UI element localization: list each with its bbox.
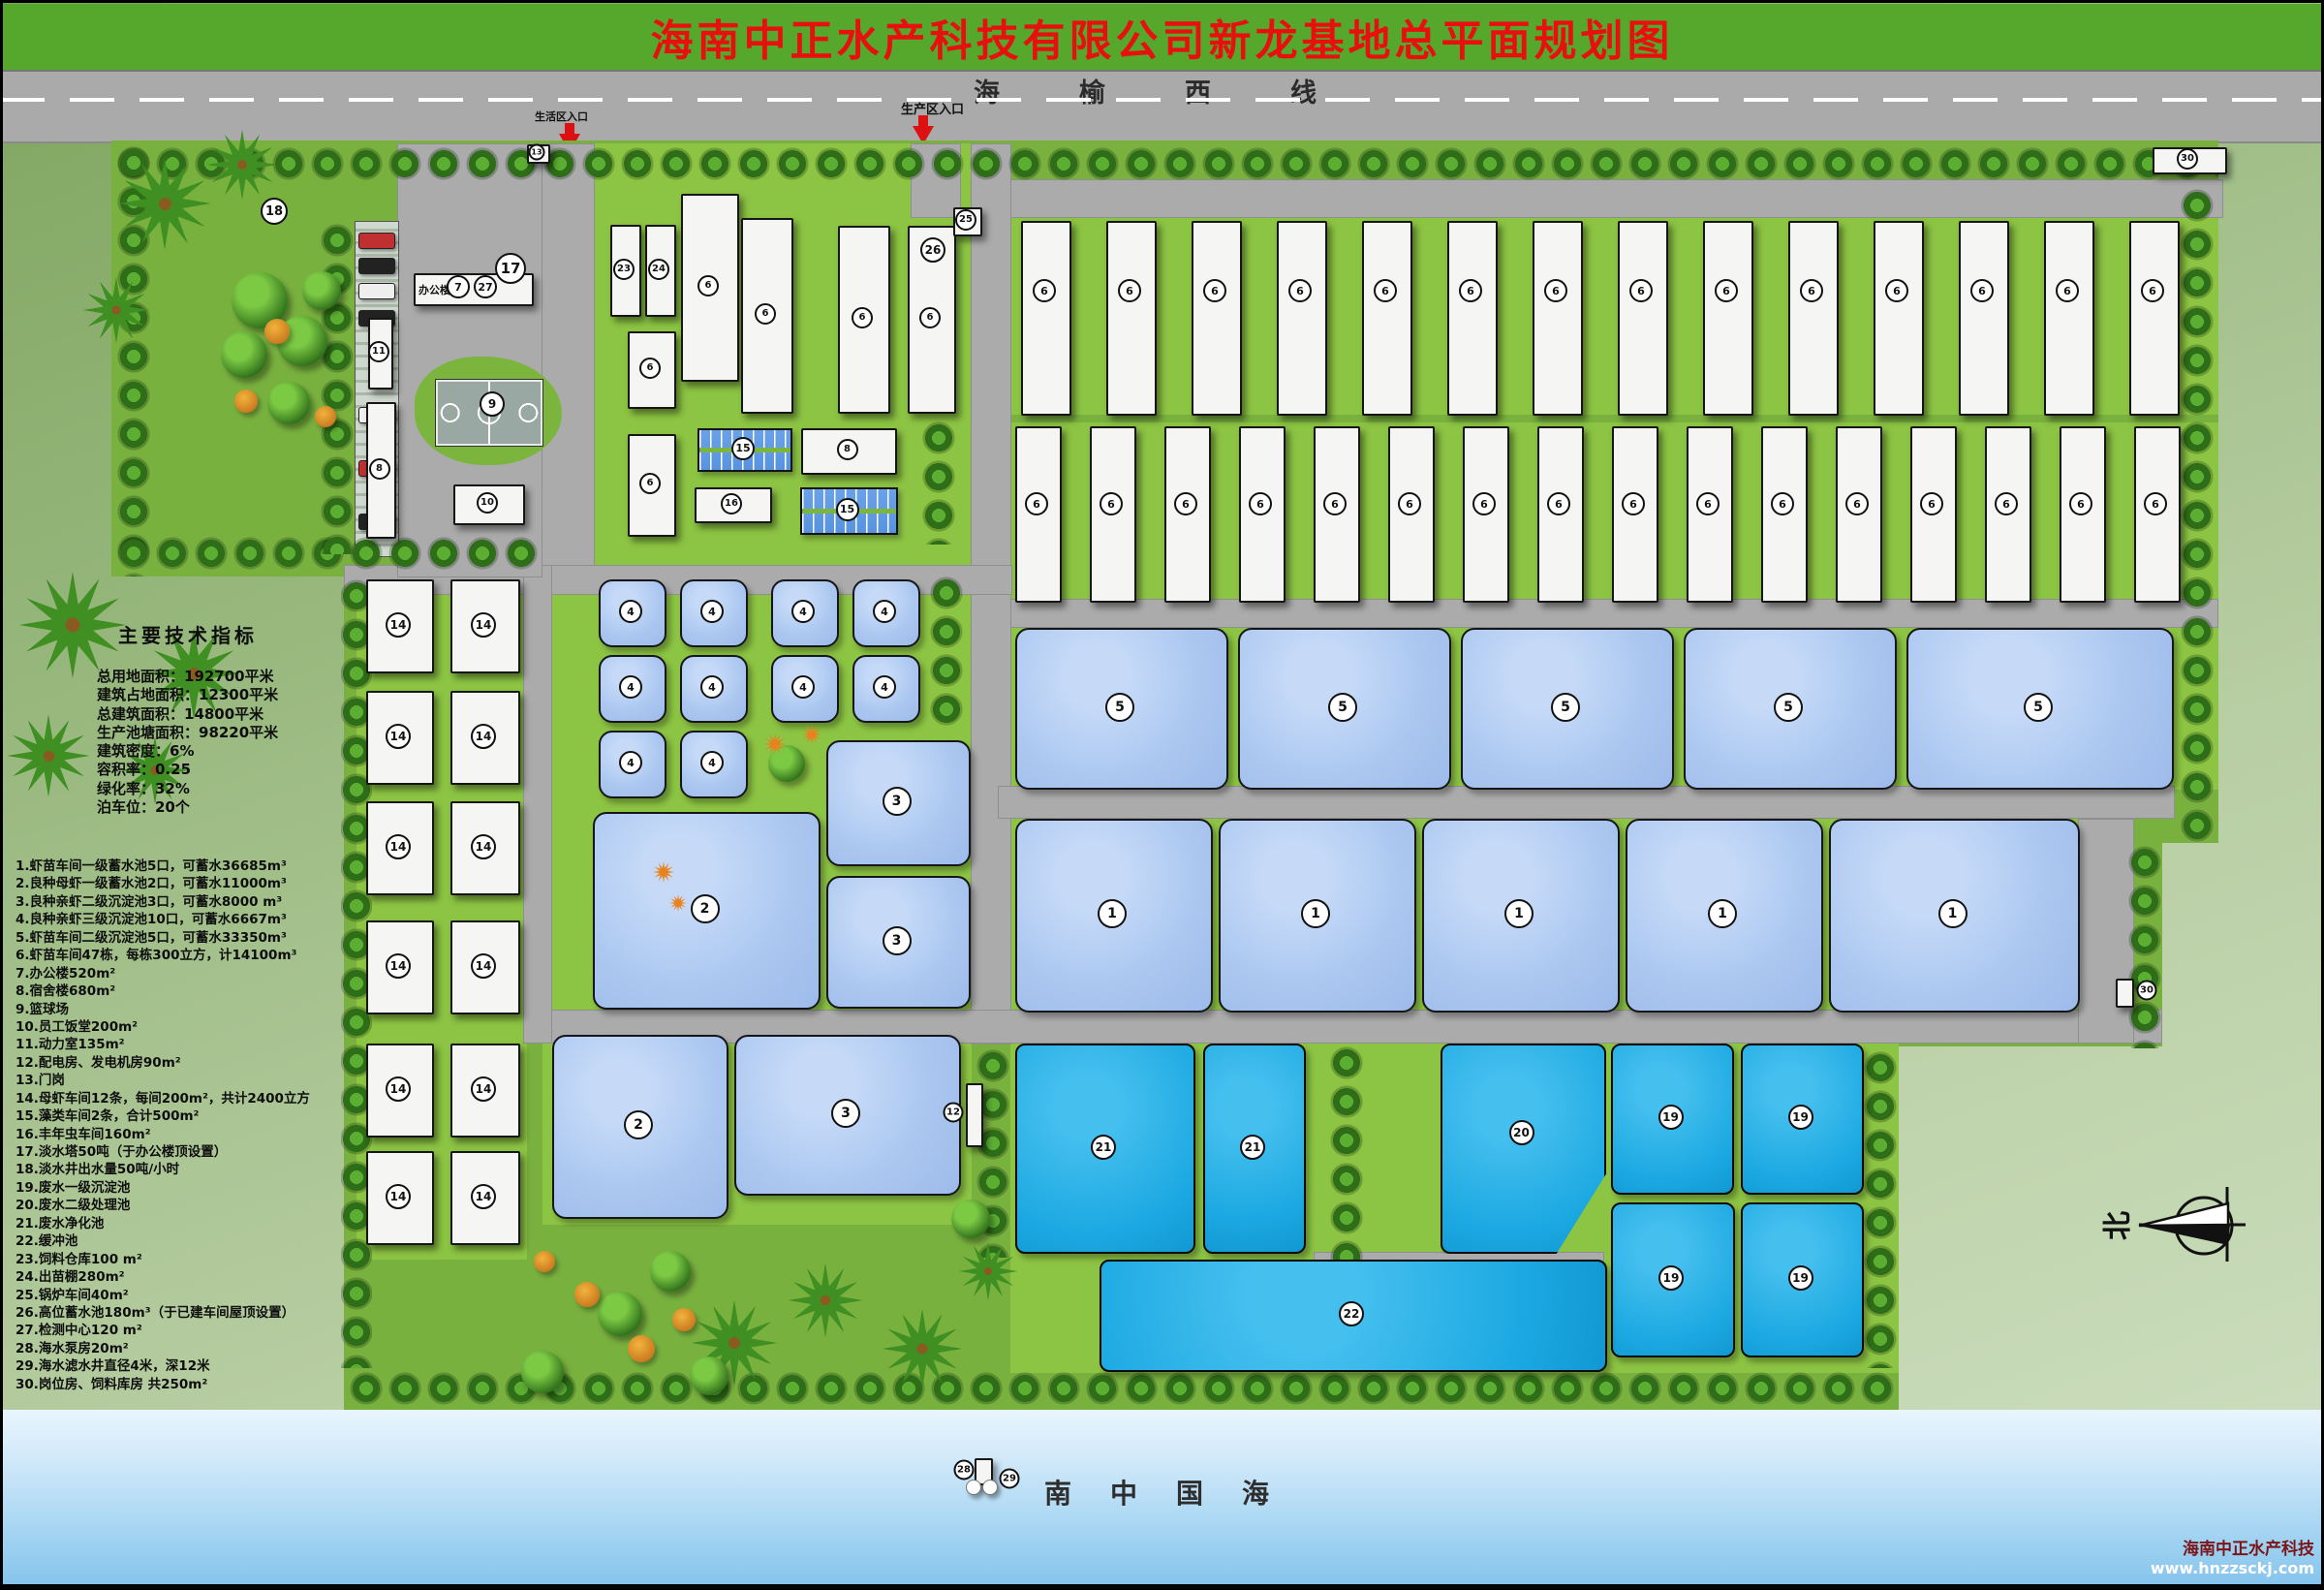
marker-6: 6 (1696, 492, 1720, 515)
orange-tree-icon (234, 390, 258, 413)
workshop-building-6 (1447, 221, 1498, 416)
marker-18: 18 (261, 198, 288, 225)
bush-tree-icon (598, 1292, 642, 1336)
legend-item: 6.虾苗车间47栋，每栋300立方，计14100m³ (15, 944, 310, 961)
marker-4: 4 (873, 675, 896, 699)
marker-7: 7 (447, 275, 470, 298)
marker-6: 6 (1459, 279, 1482, 302)
internal-road (523, 565, 552, 1044)
legend-item: 2.良种母虾一级蓄水池2口，可蓄水11000m³ (15, 872, 310, 889)
bush-tree-icon (302, 271, 341, 310)
bush-tree-icon (521, 1351, 564, 1393)
bush-tree-icon (221, 331, 267, 378)
internal-road (1010, 599, 2218, 628)
marker-1: 1 (1708, 899, 1737, 928)
legend-item: 30.岗位房、饲料库房 共250m² (15, 1373, 310, 1390)
marker-19: 19 (1788, 1105, 1813, 1130)
marker-6: 6 (1472, 492, 1496, 515)
marker-14: 14 (471, 834, 496, 859)
marker-3: 3 (831, 1099, 860, 1128)
building (2116, 979, 2134, 1008)
marker-19: 19 (1658, 1105, 1684, 1130)
marker-6: 6 (1118, 279, 1141, 302)
marker-11: 11 (368, 341, 389, 362)
car (358, 283, 395, 299)
marker-8: 8 (837, 439, 858, 460)
marker-6: 6 (919, 307, 941, 328)
orange-tree-icon (574, 1282, 600, 1307)
workshop-building-6 (2129, 221, 2180, 416)
stat-line: 建筑占地面积：12300平米 (97, 684, 278, 702)
legend-item: 14.母虾车间12条，每间200m²，共计2400立方 (15, 1087, 310, 1105)
workshop-building-6 (1362, 221, 1412, 416)
legend-item: 12.配电房、发电机房90m² (15, 1051, 310, 1069)
marker-6: 6 (1203, 279, 1226, 302)
marker-19: 19 (1788, 1265, 1813, 1291)
workshop-building-6 (1618, 221, 1668, 416)
marker-6: 6 (1622, 492, 1645, 515)
stat-line: 建筑密度：6% (97, 740, 278, 759)
marker-27: 27 (474, 275, 497, 298)
indicators-title: 主要技术指标 (118, 620, 278, 648)
site-plan-canvas: 海南中正水产科技 www.hnzzsckj.com 南中国海 海南中正水产科技有… (0, 0, 2324, 1590)
bush-tree-icon (650, 1251, 691, 1292)
marker-6: 6 (1025, 492, 1048, 515)
marker-17: 17 (495, 253, 526, 284)
stat-line: 总建筑面积：14800平米 (97, 703, 278, 722)
orange-tree-icon (672, 1308, 696, 1331)
workshop-building-6 (1533, 221, 1583, 416)
marker-12: 12 (944, 1103, 964, 1123)
marker-14: 14 (471, 1184, 496, 1209)
marker-14: 14 (386, 724, 411, 749)
marker-4: 4 (619, 675, 642, 699)
title-banner: 海南中正水产科技有限公司新龙基地总平面规划图 (3, 4, 2321, 70)
marker-6: 6 (1800, 279, 1823, 302)
stat-line: 容积率：0.25 (97, 759, 278, 777)
legend-item: 15.藻类车间2条，合计500m² (15, 1105, 310, 1122)
technical-indicators-panel: 主要技术指标 总用地面积：192700平米建筑占地面积：12300平米总建筑面积… (97, 620, 278, 815)
marker-29: 29 (1000, 1469, 1020, 1489)
marker-6: 6 (852, 307, 873, 328)
marker-5: 5 (1105, 693, 1134, 722)
marker-16: 16 (721, 493, 742, 514)
bush-tree-icon (267, 382, 310, 424)
marker-6: 6 (1845, 492, 1869, 515)
legend-item: 7.办公楼520m² (15, 962, 310, 980)
office-building-label: 办公楼 (418, 282, 450, 297)
building (966, 1083, 983, 1147)
marker-23: 23 (613, 259, 635, 280)
marker-15: 15 (731, 437, 755, 460)
marker-6: 6 (2056, 279, 2079, 302)
marker-6: 6 (1544, 279, 1567, 302)
marker-5: 5 (1328, 693, 1357, 722)
marker-4: 4 (873, 600, 896, 623)
marker-6: 6 (1715, 279, 1738, 302)
marker-26: 26 (920, 237, 945, 263)
legend-item: 16.丰年虫车间160m² (15, 1123, 310, 1140)
entrance-label-production: 生产区入口 (901, 99, 964, 117)
marker-22: 22 (1339, 1301, 1364, 1326)
marker-5: 5 (1774, 693, 1803, 722)
marker-28: 28 (954, 1460, 975, 1481)
indicators-lines: 总用地面积：192700平米建筑占地面积：12300平米总建筑面积：14800平… (97, 666, 278, 815)
tree-row (114, 143, 2218, 184)
legend-item: 3.良种亲虾二级沉淀池3口，可蓄水8000 m³ (15, 890, 310, 908)
legend-item: 21.废水净化池 (15, 1212, 310, 1230)
tree-row (347, 1368, 1897, 1409)
marker-1: 1 (1301, 899, 1330, 928)
marker-3: 3 (883, 787, 912, 816)
tree-row (899, 419, 978, 545)
marker-21: 21 (1240, 1135, 1265, 1160)
marker-14: 14 (386, 612, 411, 638)
marker-6: 6 (1100, 492, 1123, 515)
marker-14: 14 (386, 1076, 411, 1102)
legend-item: 4.良种亲虾三级沉淀池10口，可蓄水6667m³ (15, 908, 310, 925)
workshop-building-6 (1703, 221, 1753, 416)
legend-item: 20.废水二级处理池 (15, 1194, 310, 1211)
marker-14: 14 (471, 612, 496, 638)
stat-line: 总用地面积：192700平米 (97, 666, 278, 684)
marker-6: 6 (1771, 492, 1794, 515)
marker-19: 19 (1658, 1265, 1684, 1291)
marker-1: 1 (1098, 899, 1127, 928)
marker-6: 6 (1323, 492, 1347, 515)
bush-tree-icon (951, 1200, 990, 1238)
marker-14: 14 (386, 1184, 411, 1209)
orange-tree-icon (534, 1251, 555, 1272)
marker-30: 30 (2177, 148, 2198, 170)
internal-road (998, 786, 2175, 819)
legend-item: 13.门岗 (15, 1069, 310, 1086)
car (358, 258, 395, 274)
legend-item: 11.动力室135m² (15, 1033, 310, 1050)
marker-21: 21 (1091, 1135, 1116, 1160)
palm-tree-icon (8, 715, 90, 797)
marker-6: 6 (1629, 279, 1653, 302)
compass-north-label: 北 (2101, 1211, 2135, 1240)
marker-6: 6 (1249, 492, 1272, 515)
seawater-filter-well (966, 1480, 981, 1495)
car (358, 233, 395, 249)
marker-25: 25 (955, 209, 976, 231)
marker-6: 6 (1885, 279, 1908, 302)
marker-1: 1 (1504, 899, 1534, 928)
marker-5: 5 (1551, 693, 1580, 722)
legend-item: 5.虾苗车间二级沉淀池5口，可蓄水33350m³ (15, 926, 310, 944)
entrance-label-living: 生活区入口 (535, 109, 588, 124)
legend-item: 17.淡水塔50吨（于办公楼顶设置） (15, 1140, 310, 1158)
marker-14: 14 (386, 953, 411, 979)
legend-item: 22.缓冲池 (15, 1230, 310, 1247)
internal-road (539, 143, 595, 577)
marker-14: 14 (471, 953, 496, 979)
legend-item: 10.员工饭堂200m² (15, 1015, 310, 1033)
marker-6: 6 (2069, 492, 2092, 515)
sea-name-label: 南中国海 (1044, 1473, 1308, 1512)
stat-line: 生产池塘面积：98220平米 (97, 722, 278, 740)
marker-6: 6 (2141, 279, 2164, 302)
workshop-building-6 (2044, 221, 2094, 416)
workshop-building-6 (1277, 221, 1327, 416)
legend-item: 23.饲料仓库100 m² (15, 1248, 310, 1265)
highway-haiyu-west-line: 海榆西线 (0, 70, 2324, 143)
legend-item: 28.海水泵房20m² (15, 1337, 310, 1355)
marker-30: 30 (2137, 981, 2157, 1001)
marker-4: 4 (619, 751, 642, 774)
workshop-building-6 (1959, 221, 2009, 416)
marker-4: 4 (791, 675, 815, 699)
compass-icon: 北 (2083, 1143, 2296, 1308)
marker-6: 6 (1374, 279, 1397, 302)
legend-item: 19.废水一级沉淀池 (15, 1176, 310, 1194)
bush-tree-icon (768, 745, 805, 782)
marker-14: 14 (386, 834, 411, 859)
marker-6: 6 (755, 303, 776, 325)
marker-8: 8 (369, 458, 390, 480)
legend-item: 24.出苗棚280m² (15, 1265, 310, 1283)
workshop-building-6 (1788, 221, 1839, 416)
marker-4: 4 (619, 600, 642, 623)
tree-row (2127, 843, 2162, 1048)
marker-6: 6 (1547, 492, 1570, 515)
marker-6: 6 (1920, 492, 1943, 515)
marker-24: 24 (648, 259, 669, 280)
orange-tree-icon (264, 319, 290, 344)
legend-item: 25.锅炉车间40m² (15, 1284, 310, 1301)
road-centerline (0, 98, 2324, 102)
workshop-building-6 (1874, 221, 1924, 416)
legend-item: 26.高位蓄水池180m³（于已建车间屋顶设置） (15, 1301, 310, 1319)
marker-6: 6 (1995, 492, 2018, 515)
tree-row (922, 574, 971, 731)
legend-item: 9.篮球场 (15, 998, 310, 1015)
seawater-filter-well (982, 1480, 998, 1495)
legend-item: 27.检测中心120 m² (15, 1319, 310, 1336)
watermark-company: 海南中正水产科技 (2151, 1535, 2314, 1559)
internal-road (971, 179, 2223, 218)
marker-6: 6 (697, 275, 719, 296)
watermark-url: www.hnzzsckj.com (2151, 1559, 2314, 1577)
marker-3: 3 (883, 926, 912, 955)
tree-row (2178, 186, 2216, 843)
watermark: 海南中正水产科技 www.hnzzsckj.com (2151, 1535, 2314, 1577)
marker-9: 9 (480, 391, 505, 417)
marker-6: 6 (1398, 492, 1421, 515)
legend-item: 18.淡水井出水量50吨/小时 (15, 1158, 310, 1175)
marker-13: 13 (529, 144, 545, 161)
workshop-building-6 (1021, 221, 1071, 416)
legend-item: 8.宿舍楼680m² (15, 980, 310, 997)
plan-title: 海南中正水产科技有限公司新龙基地总平面规划图 (651, 6, 1674, 68)
stat-line: 绿化率：32% (97, 778, 278, 796)
marker-4: 4 (700, 751, 724, 774)
legend-item: 1.虾苗车间一级蓄水池5口，可蓄水36685m³ (15, 855, 310, 872)
workshop-building-6 (1192, 221, 1242, 416)
marker-14: 14 (471, 1076, 496, 1102)
workshop-building-6 (1106, 221, 1157, 416)
marker-20: 20 (1509, 1120, 1534, 1145)
marker-14: 14 (471, 724, 496, 749)
marker-2: 2 (624, 1110, 653, 1139)
marker-6: 6 (639, 358, 661, 379)
marker-6: 6 (639, 473, 661, 494)
marker-4: 4 (700, 600, 724, 623)
orange-tree-icon (628, 1335, 655, 1362)
marker-1: 1 (1938, 899, 1968, 928)
entrance-arrow-living (565, 123, 574, 134)
marker-4: 4 (791, 600, 815, 623)
marker-6: 6 (2144, 492, 2167, 515)
tree-row (1310, 1044, 1383, 1263)
marker-6: 6 (1970, 279, 1994, 302)
tree-row (1862, 1048, 1899, 1368)
marker-6: 6 (1288, 279, 1312, 302)
internal-road (2078, 819, 2134, 1044)
marker-6: 6 (1033, 279, 1056, 302)
marker-6: 6 (1174, 492, 1197, 515)
stat-line: 泊车位：20个 (97, 796, 278, 815)
legend-panel: 1.虾苗车间一级蓄水池5口，可蓄水36685m³2.良种母虾一级蓄水池2口，可蓄… (15, 855, 310, 1390)
marker-5: 5 (2024, 693, 2053, 722)
marker-15: 15 (836, 498, 859, 521)
marker-2: 2 (691, 894, 720, 923)
bush-tree-icon (690, 1356, 728, 1395)
entrance-arrow-production (918, 115, 928, 126)
legend-item: 29.海水滤水井直径4米，深12米 (15, 1355, 310, 1372)
highway-name-label: 海榆西线 (974, 72, 1396, 109)
marker-4: 4 (700, 675, 724, 699)
orange-tree-icon (315, 406, 336, 427)
marker-10: 10 (477, 492, 498, 514)
